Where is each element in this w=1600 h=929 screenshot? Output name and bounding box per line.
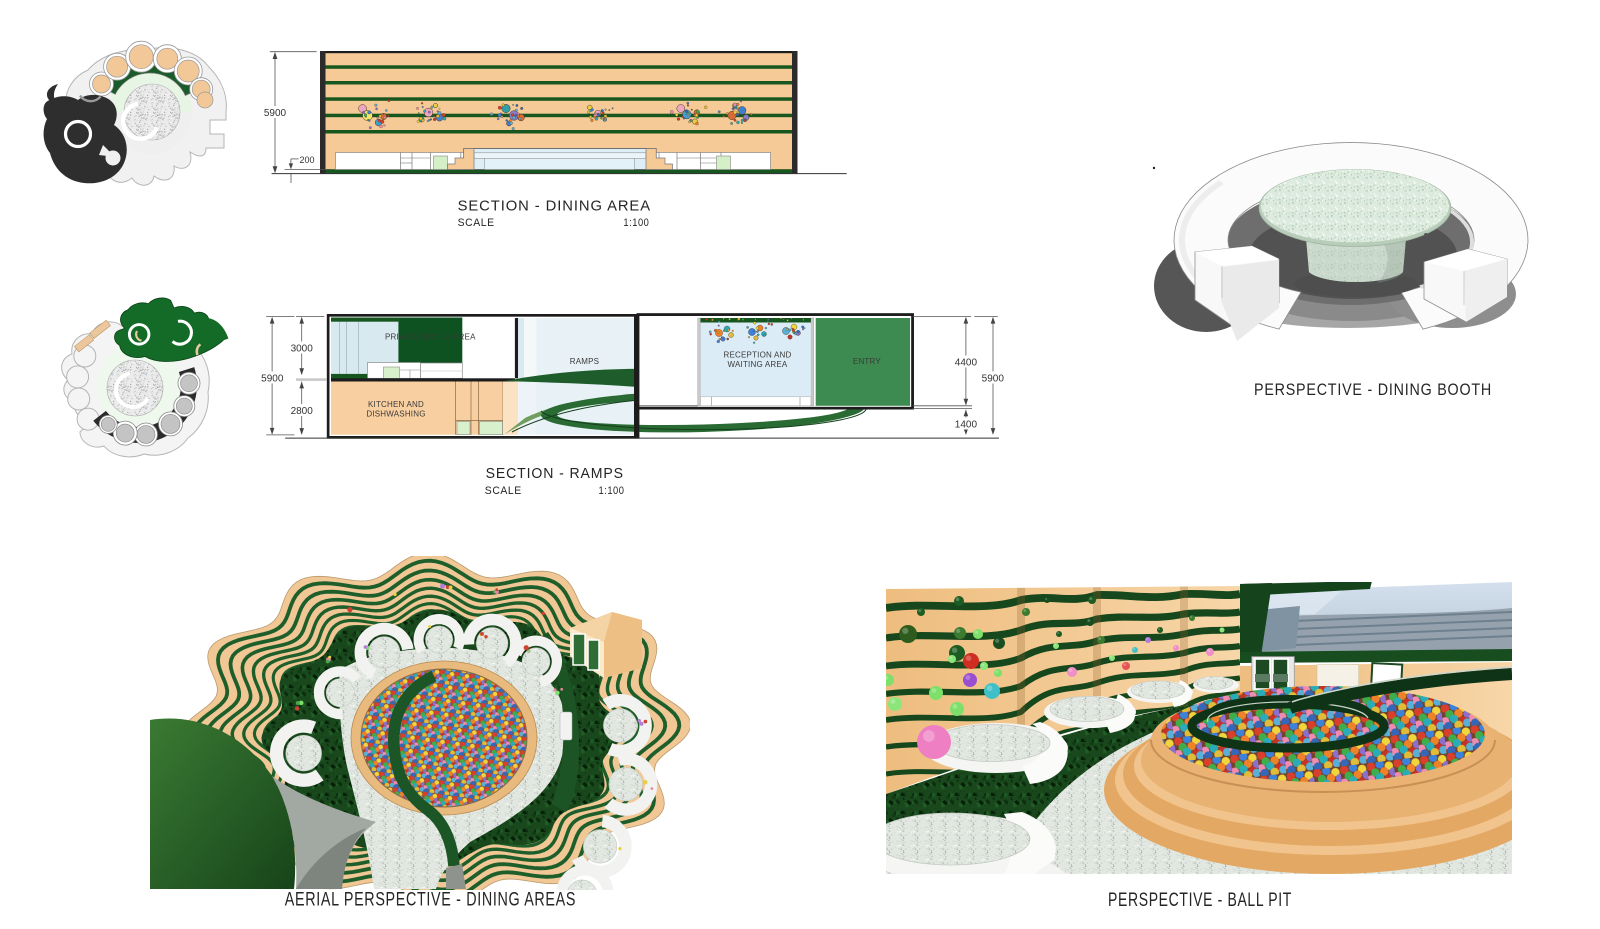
svg-text:1:100: 1:100 [599, 485, 625, 497]
svg-text:DISHWASHING: DISHWASHING [366, 410, 425, 419]
svg-text:SCALE: SCALE [485, 485, 522, 497]
svg-text:ENTRY: ENTRY [853, 357, 881, 366]
svg-text:WAITING AREA: WAITING AREA [728, 360, 788, 369]
svg-text:3000: 3000 [291, 343, 314, 354]
svg-text:4400: 4400 [955, 357, 978, 368]
svg-text:RECEPTION AND: RECEPTION AND [724, 351, 792, 360]
svg-text:1:100: 1:100 [623, 217, 649, 229]
svg-text:PRIVATE DINING AREA: PRIVATE DINING AREA [385, 333, 476, 342]
svg-text:SCALE: SCALE [458, 217, 495, 229]
svg-text:1400: 1400 [955, 419, 978, 430]
svg-text:PERSPECTIVE - DINING BOOTH: PERSPECTIVE - DINING BOOTH [1254, 381, 1492, 399]
svg-text:KITCHEN AND: KITCHEN AND [368, 400, 424, 409]
svg-text:SECTION - DINING AREA: SECTION - DINING AREA [458, 199, 651, 215]
svg-text:AERIAL PERSPECTIVE - DINING AR: AERIAL PERSPECTIVE - DINING AREAS [285, 889, 576, 911]
svg-text:2800: 2800 [291, 406, 314, 417]
svg-text:PERSPECTIVE - BALL PIT: PERSPECTIVE - BALL PIT [1108, 889, 1292, 911]
svg-text:5900: 5900 [261, 373, 284, 384]
svg-text:RAMPS: RAMPS [570, 357, 599, 366]
svg-text:200: 200 [300, 155, 315, 165]
svg-text:SECTION - RAMPS: SECTION - RAMPS [486, 466, 624, 482]
svg-text:5900: 5900 [264, 108, 287, 119]
svg-text:5900: 5900 [982, 373, 1005, 384]
